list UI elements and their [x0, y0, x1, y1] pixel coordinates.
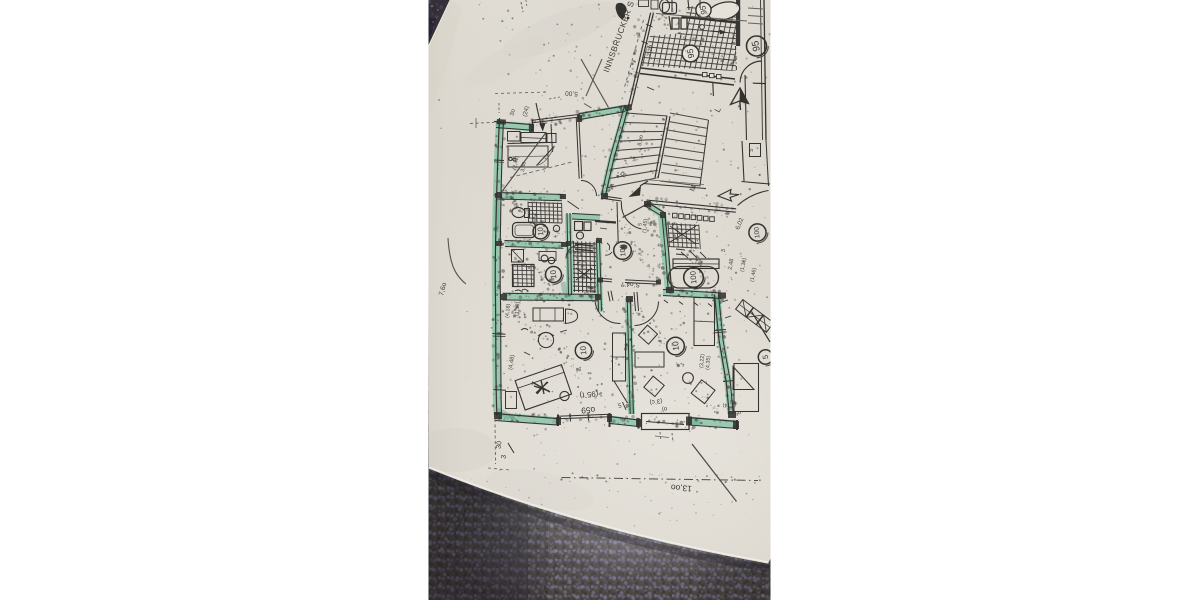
svg-text:o)`: o)` — [659, 405, 667, 412]
svg-text:100: 100 — [754, 226, 762, 238]
svg-text:13,oo: 13,oo — [670, 483, 692, 494]
svg-text:100: 100 — [688, 270, 698, 284]
svg-text:S`o4`7: S`o4`7 — [620, 280, 640, 288]
svg-text:95: 95 — [685, 48, 697, 59]
svg-text:10: 10 — [579, 345, 589, 355]
svg-text:30: 30 — [496, 440, 504, 449]
svg-text:(4,35): (4,35) — [705, 355, 712, 370]
svg-text:5,00: 5,00 — [565, 89, 579, 97]
svg-text:5: 5 — [761, 354, 770, 359]
